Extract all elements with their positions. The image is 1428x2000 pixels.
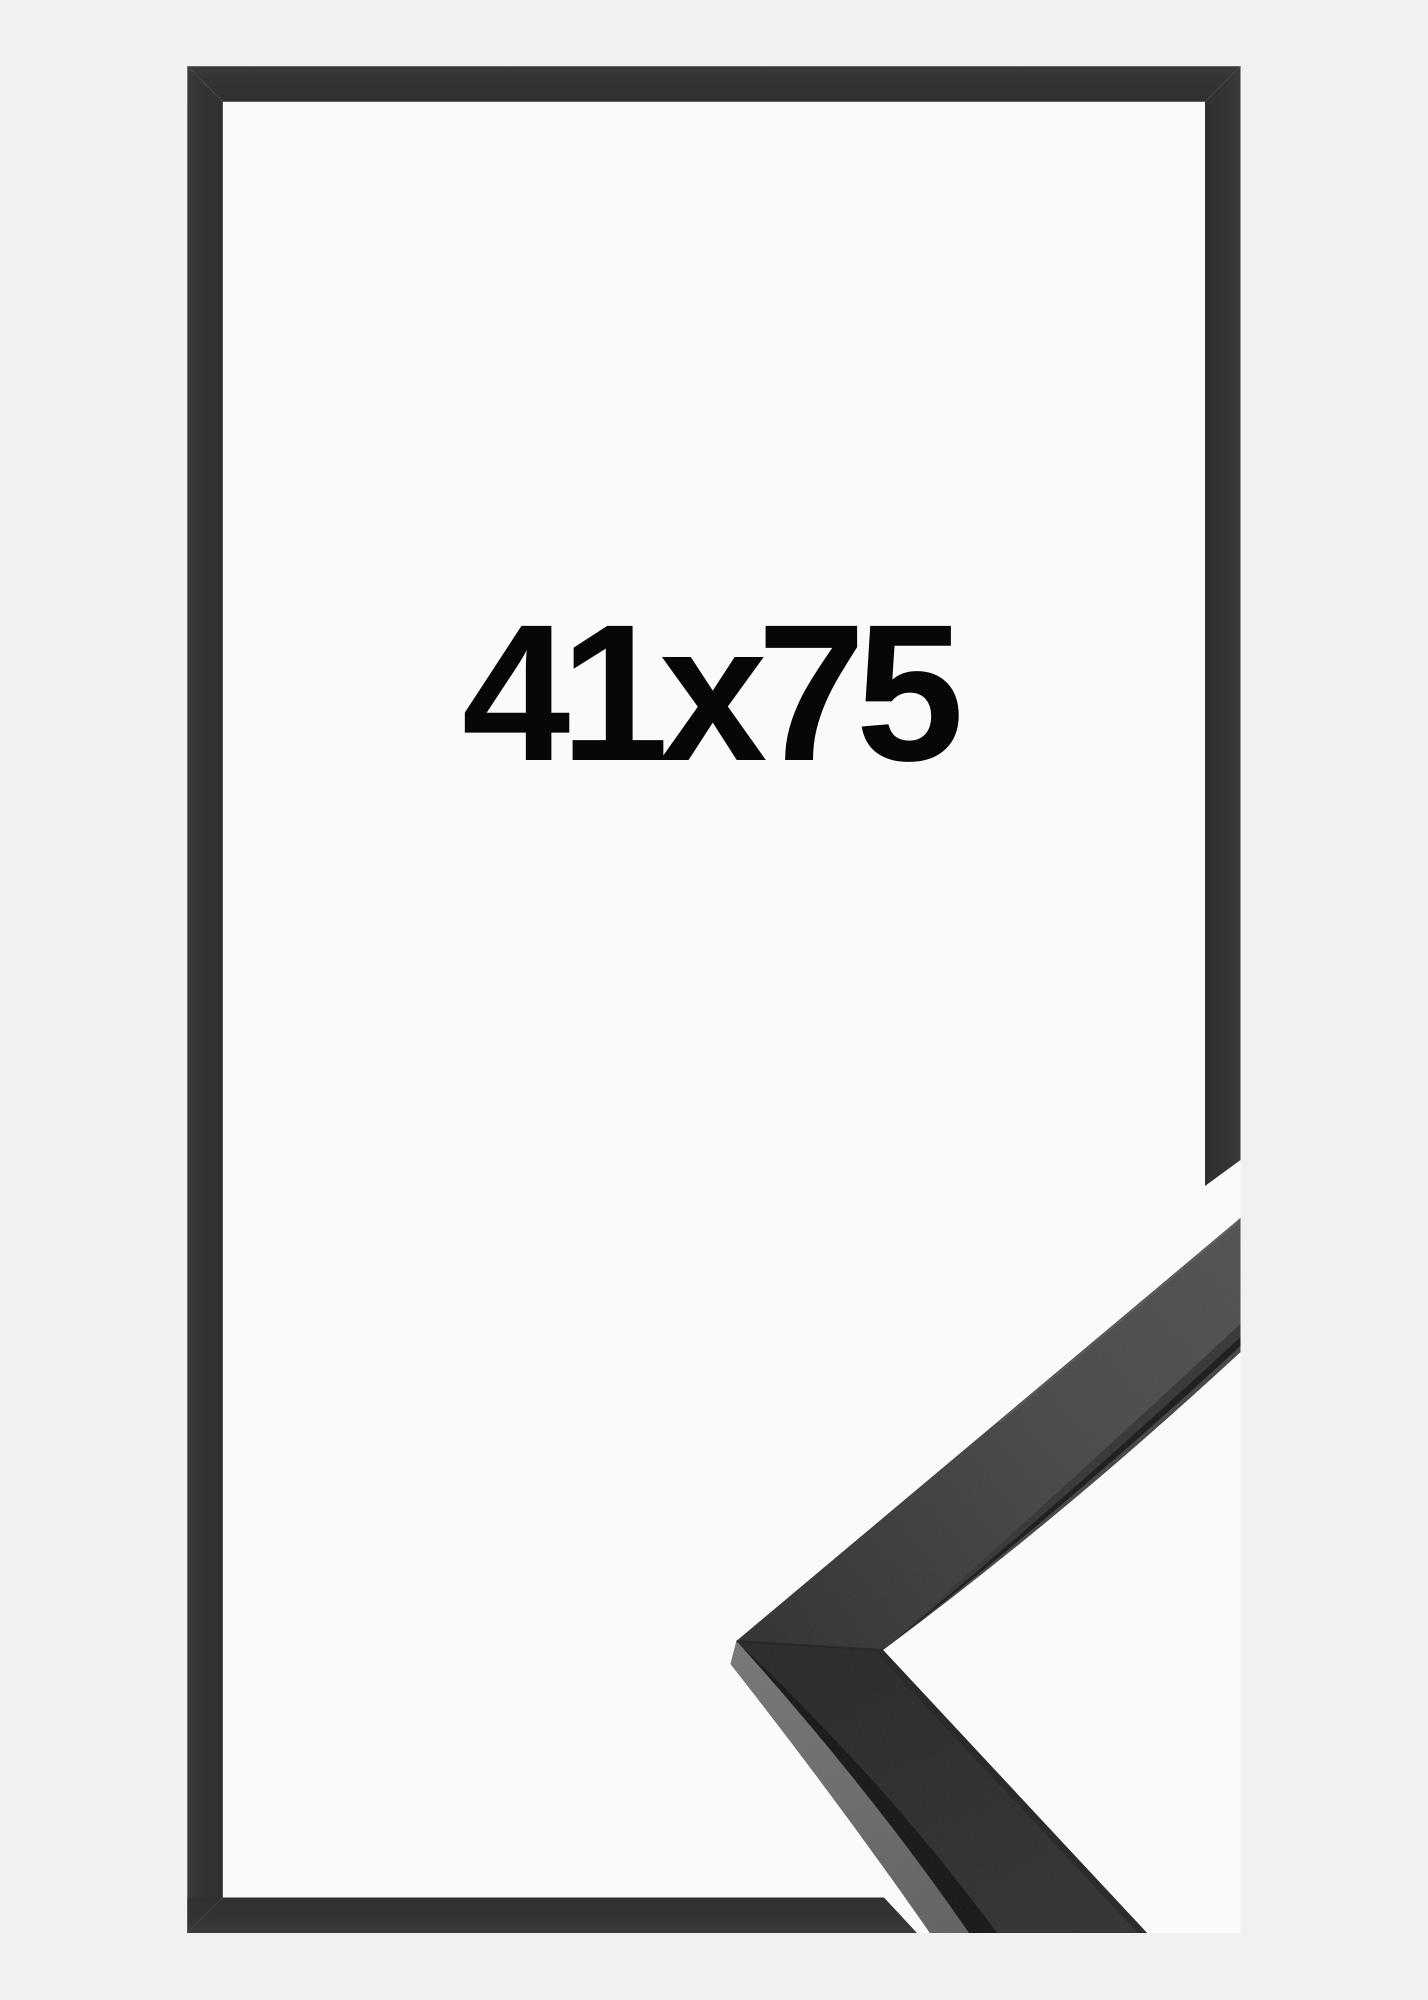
svg-text:41x75: 41x75 — [462, 584, 960, 802]
